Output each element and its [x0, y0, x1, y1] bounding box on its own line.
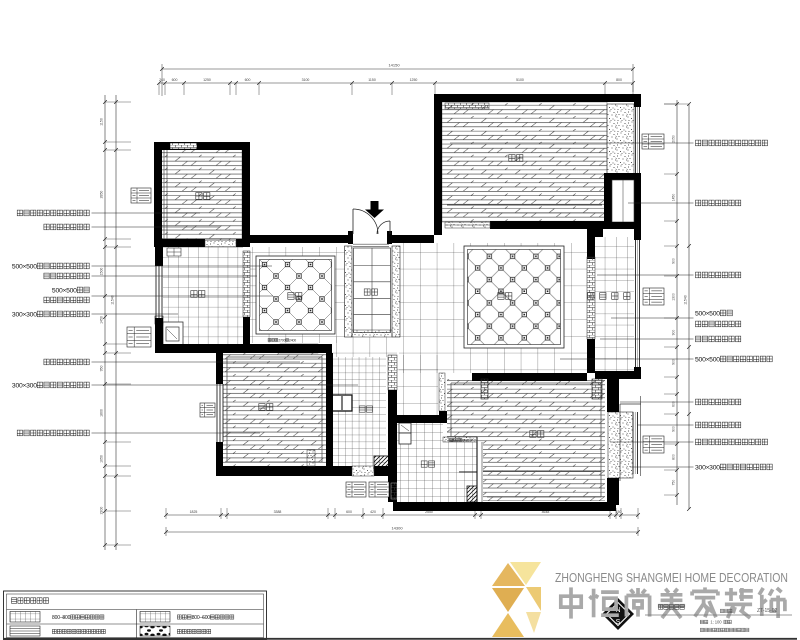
svg-text:0: 0 [716, 357, 720, 364]
svg-text:1825: 1825 [190, 510, 198, 514]
svg-text:800: 800 [672, 454, 676, 460]
svg-text:2850: 2850 [100, 191, 104, 199]
svg-text:11540: 11540 [111, 295, 115, 305]
svg-text:900: 900 [672, 258, 676, 264]
svg-text:750: 750 [672, 480, 676, 486]
svg-text:3388: 3388 [274, 510, 282, 514]
svg-text:1450: 1450 [100, 316, 104, 324]
svg-text:0: 0 [716, 311, 720, 318]
svg-text:1800: 1800 [100, 409, 104, 417]
svg-text:800: 800 [616, 78, 622, 82]
svg-text:0: 0 [33, 264, 37, 271]
svg-text:ZHONGHENG SHANGMEI HOME DECORA: ZHONGHENG SHANGMEI HOME DECORATION [555, 571, 788, 585]
svg-text:1150: 1150 [100, 118, 104, 126]
svg-text:1050: 1050 [100, 455, 104, 463]
svg-text:900: 900 [672, 426, 676, 432]
svg-text:14300: 14300 [391, 526, 403, 531]
svg-text:0: 0 [33, 383, 37, 390]
svg-text:14150: 14150 [388, 63, 400, 68]
svg-text::: : [713, 620, 714, 625]
svg-text:1300: 1300 [672, 293, 676, 301]
svg-text:900: 900 [672, 359, 676, 365]
svg-text:2200: 2200 [100, 507, 104, 515]
svg-text:ZT-15-02: ZT-15-02 [757, 608, 778, 614]
svg-text:2050: 2050 [672, 135, 676, 143]
svg-text:1500: 1500 [100, 268, 104, 276]
svg-text:5100: 5100 [516, 78, 524, 82]
svg-text:1150: 1150 [368, 78, 376, 82]
svg-text:0: 0 [33, 312, 37, 319]
svg-text:600: 600 [346, 510, 352, 514]
svg-text:240: 240 [159, 78, 165, 82]
svg-text:3100: 3100 [302, 78, 310, 82]
svg-text:150: 150 [616, 510, 622, 514]
svg-text:1450: 1450 [672, 194, 676, 202]
svg-text:1250: 1250 [410, 78, 418, 82]
svg-text:0: 0 [73, 288, 77, 295]
svg-text:0: 0 [294, 338, 296, 342]
svg-text:11540: 11540 [684, 295, 688, 305]
svg-text:0: 0 [284, 338, 286, 342]
svg-text:0: 0 [68, 615, 71, 621]
svg-text:900: 900 [672, 330, 676, 336]
svg-text:950: 950 [100, 366, 104, 372]
svg-text:1: 1 [470, 438, 472, 442]
svg-text:600: 600 [172, 78, 178, 82]
svg-text:420: 420 [370, 510, 376, 514]
svg-text:0: 0 [716, 465, 720, 472]
svg-text:S: S [616, 619, 621, 626]
svg-text:0: 0 [207, 615, 210, 621]
svg-text:600: 600 [245, 78, 251, 82]
svg-text:1250: 1250 [203, 78, 211, 82]
